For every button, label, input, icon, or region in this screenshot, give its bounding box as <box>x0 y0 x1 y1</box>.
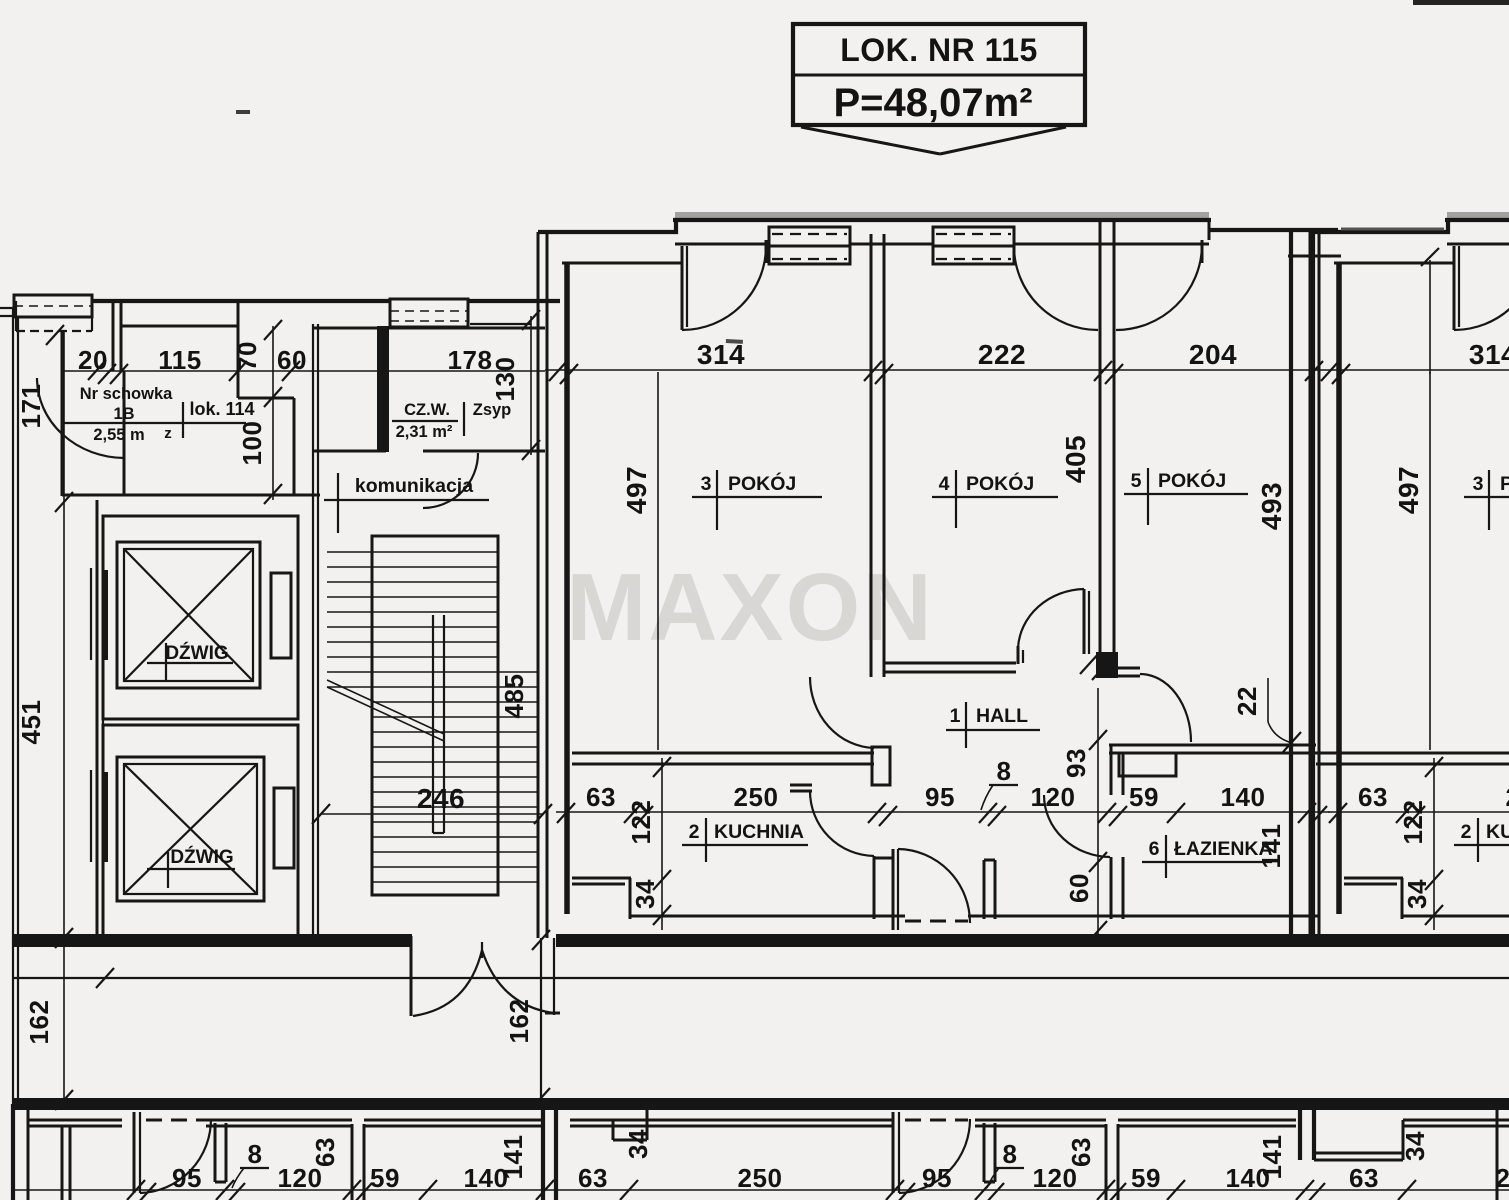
svg-text:250: 250 <box>1496 1163 1509 1193</box>
svg-text:CZ.W.: CZ.W. <box>404 401 450 419</box>
svg-text:59: 59 <box>1131 1163 1161 1193</box>
svg-text:59: 59 <box>1129 782 1159 812</box>
svg-text:DŹWIG: DŹWIG <box>170 846 233 868</box>
svg-text:120: 120 <box>1031 782 1076 812</box>
svg-text:2,55 m: 2,55 m <box>93 426 144 444</box>
svg-text:246: 246 <box>417 783 465 814</box>
svg-text:140: 140 <box>1221 782 1266 812</box>
svg-text:8: 8 <box>248 1139 263 1169</box>
svg-text:3: 3 <box>701 473 712 495</box>
svg-text:222: 222 <box>978 339 1026 370</box>
svg-text:178: 178 <box>448 345 493 375</box>
svg-text:93: 93 <box>1061 748 1091 778</box>
svg-text:405: 405 <box>1060 435 1091 483</box>
svg-text:314: 314 <box>697 339 745 370</box>
svg-text:2,31 m²: 2,31 m² <box>396 423 453 441</box>
svg-text:63: 63 <box>578 1163 608 1193</box>
svg-text:63: 63 <box>310 1137 340 1167</box>
svg-text:20: 20 <box>78 345 108 375</box>
svg-text:95: 95 <box>925 782 955 812</box>
svg-text:162: 162 <box>504 999 534 1044</box>
svg-text:1: 1 <box>950 705 961 727</box>
svg-text:z: z <box>164 425 172 442</box>
svg-text:34: 34 <box>623 1129 653 1159</box>
svg-text:95: 95 <box>172 1163 202 1193</box>
svg-text:451: 451 <box>16 700 46 745</box>
svg-text:Nr schowka: Nr schowka <box>80 385 173 403</box>
svg-text:162: 162 <box>24 1000 54 1045</box>
svg-text:komunikacja: komunikacja <box>355 475 473 497</box>
svg-text:Zsyp: Zsyp <box>473 401 512 419</box>
svg-text:2: 2 <box>689 821 700 843</box>
svg-text:P=48,07m²: P=48,07m² <box>833 81 1032 125</box>
svg-text:4: 4 <box>939 473 950 495</box>
svg-text:63: 63 <box>1349 1163 1379 1193</box>
svg-text:1B: 1B <box>113 405 134 423</box>
svg-text:POKÓJ: POKÓJ <box>728 471 796 495</box>
svg-text:POKÓJ: POKÓJ <box>966 471 1034 495</box>
svg-text:130: 130 <box>490 357 520 402</box>
svg-text:8: 8 <box>997 756 1012 786</box>
svg-text:KUCHNIA: KUCHNIA <box>714 821 804 843</box>
svg-text:250: 250 <box>738 1163 783 1193</box>
svg-text:250: 250 <box>734 782 779 812</box>
svg-text:141: 141 <box>498 1135 528 1180</box>
svg-text:DŹWIG: DŹWIG <box>165 642 228 664</box>
svg-text:8: 8 <box>1003 1139 1018 1169</box>
svg-text:63: 63 <box>586 782 616 812</box>
svg-text:LOK. NR 115: LOK. NR 115 <box>840 32 1038 68</box>
svg-text:6: 6 <box>1149 838 1160 860</box>
svg-text:100: 100 <box>237 421 267 466</box>
svg-text:lok. 114: lok. 114 <box>189 399 254 419</box>
svg-text:5: 5 <box>1131 470 1142 492</box>
svg-text:141: 141 <box>1257 1135 1287 1180</box>
svg-text:122: 122 <box>626 800 656 845</box>
svg-text:141: 141 <box>1256 824 1286 869</box>
svg-text:63: 63 <box>1066 1137 1096 1167</box>
svg-text:485: 485 <box>499 674 529 719</box>
svg-text:60: 60 <box>277 345 307 375</box>
svg-text:115: 115 <box>158 345 201 375</box>
svg-text:59: 59 <box>370 1163 400 1193</box>
svg-text:MAXON: MAXON <box>566 554 933 661</box>
svg-text:POKÓJ: POKÓJ <box>1158 468 1226 492</box>
svg-text:HALL: HALL <box>976 705 1028 727</box>
svg-text:60: 60 <box>1064 873 1094 903</box>
svg-text:22: 22 <box>1232 686 1262 716</box>
svg-text:204: 204 <box>1189 339 1237 370</box>
svg-text:493: 493 <box>1256 482 1287 530</box>
svg-text:34: 34 <box>630 879 660 909</box>
svg-text:34: 34 <box>1400 1131 1430 1161</box>
svg-text:497: 497 <box>621 466 652 514</box>
svg-text:95: 95 <box>922 1163 952 1193</box>
